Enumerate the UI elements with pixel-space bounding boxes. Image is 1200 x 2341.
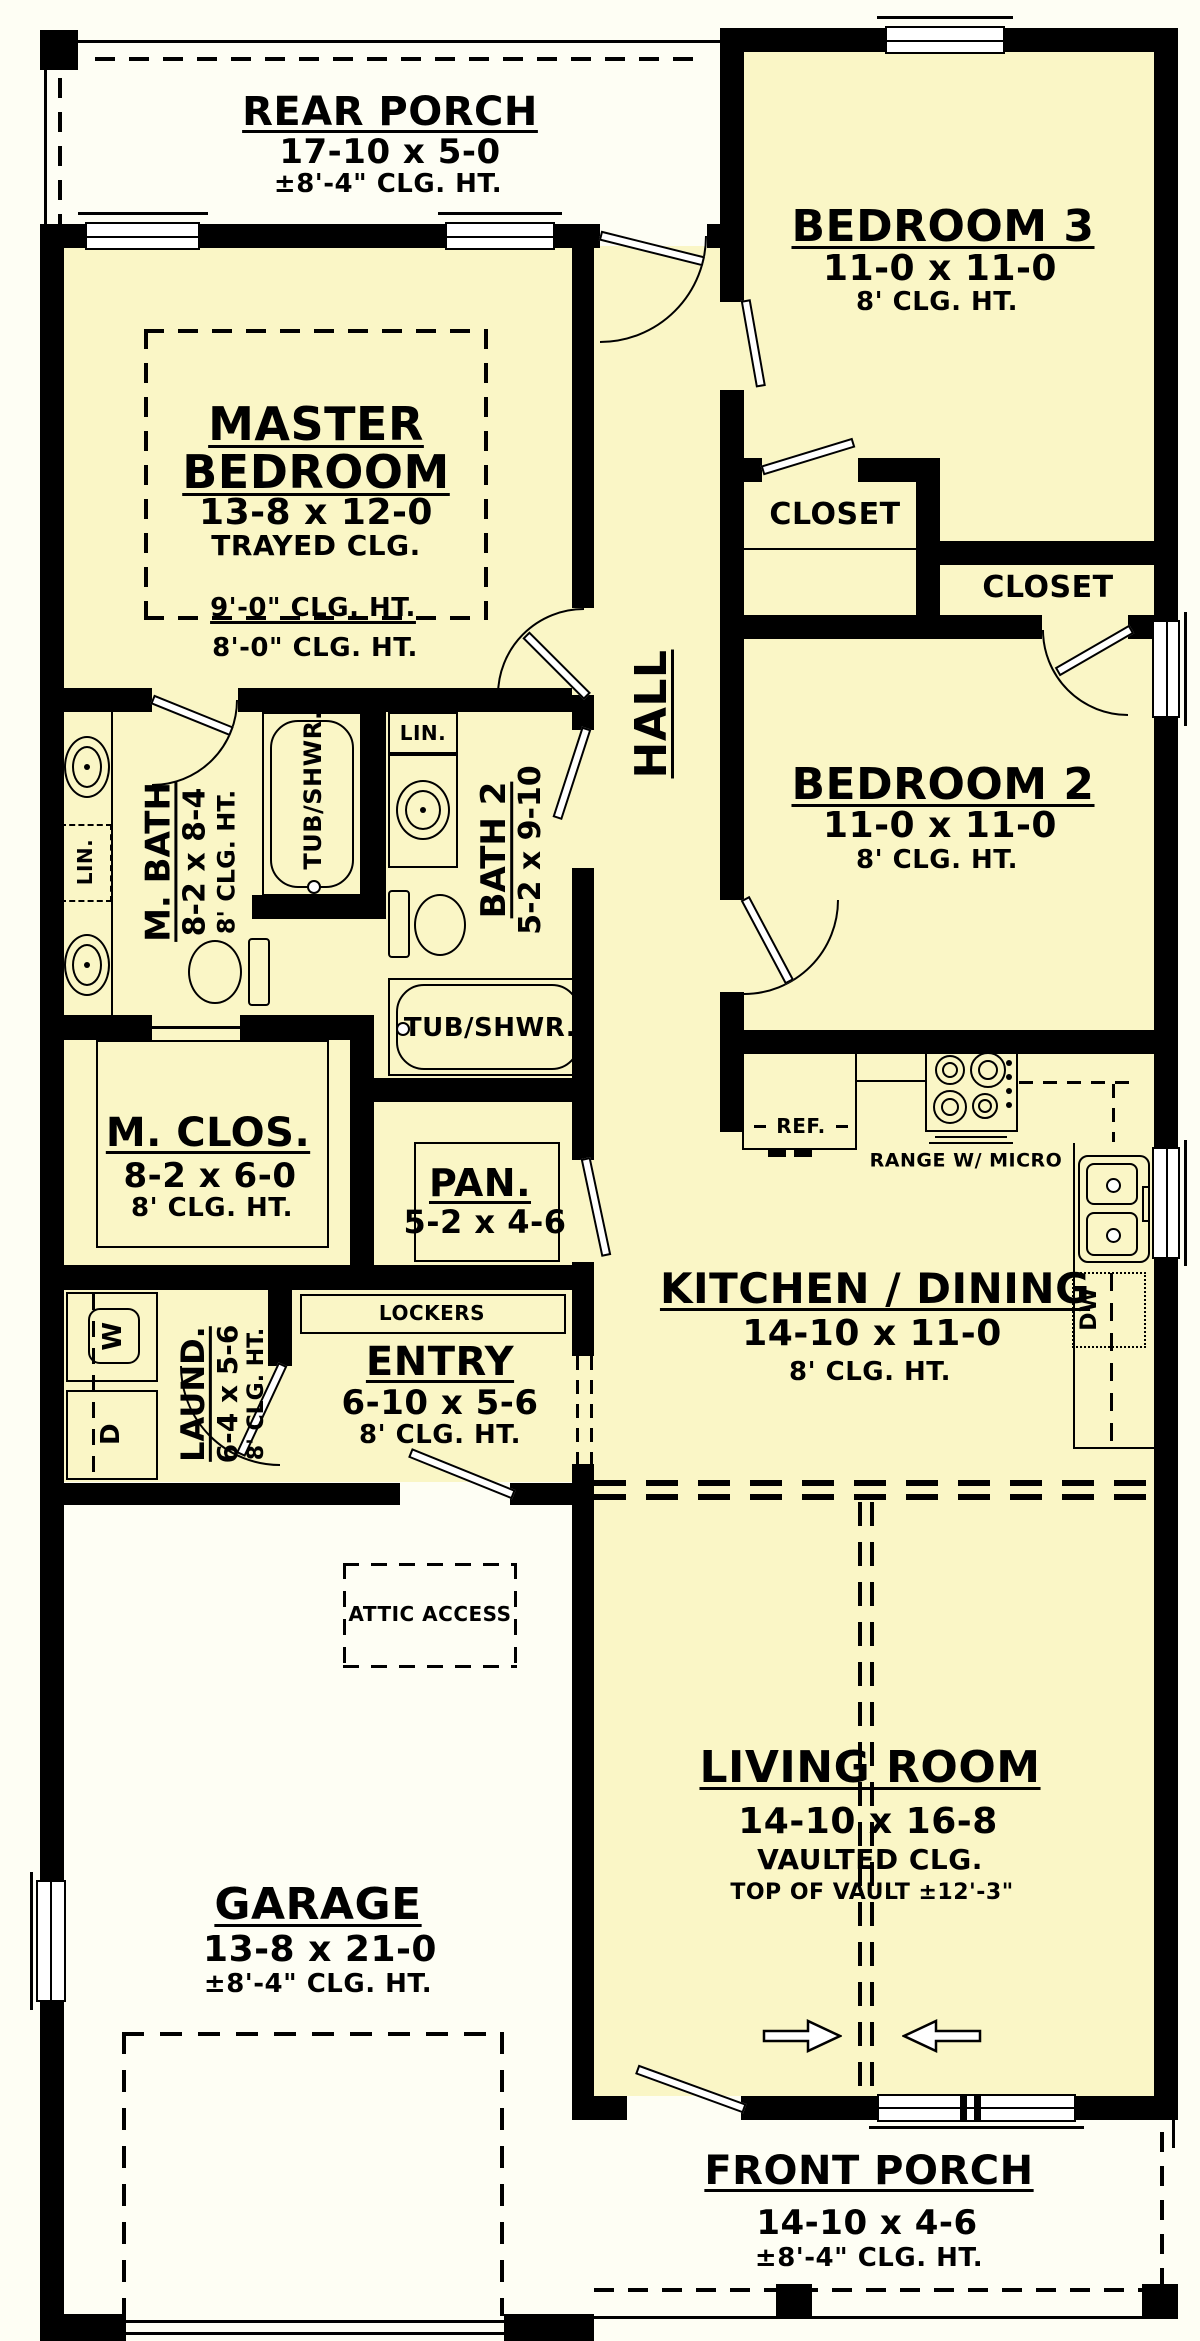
laundry-clg: 8' CLG. HT. [244,1325,269,1464]
mbath-label-block: M. BATH 8-2 x 8-4 8' CLG. HT. [139,782,240,942]
range-knob-1 [1006,1060,1012,1066]
wall-living-front-b [741,2096,877,2120]
tray-ceiling-dash-left [144,329,148,620]
kitchen-counter-bottom-edge [1073,1447,1154,1449]
wall-living-front-a [572,2096,627,2120]
front-porch-edge-right-solid [1172,2120,1175,2148]
master-low-clg-note: 8'-0" CLG. HT. [212,635,418,661]
ref-label-dash-left [754,1125,766,1128]
bath2-name: BATH 2 [475,765,514,935]
wall-garage-bottom-a [40,2314,126,2341]
rear-porch-dashed-left [58,78,62,224]
lockers-label: LOCKERS [379,1303,485,1323]
tray-ceiling-dash-right [484,329,488,620]
entry-cased-opening-dash-2 [590,1356,593,1464]
ridge-arrow-left-icon [902,2016,982,2056]
kitchen-cab-dash-h [1019,1081,1134,1084]
sink-faucet [1142,1186,1150,1222]
burner-4i [978,1099,992,1113]
window-garage [36,1880,66,2002]
entry-clg: 8' CLG. HT. [359,1422,521,1448]
master-name-line2: BEDROOM [182,449,450,495]
front-porch-name: FRONT PORCH [704,2151,1033,2191]
garage-door-panel-line2 [126,2332,504,2335]
ridge-dash-left [858,1502,862,2096]
kitchen-dims: 14-10 x 11-0 [742,1316,1002,1352]
window-rear-1 [85,222,200,250]
wall-living-front-c [1076,2096,1178,2120]
garage-dims: 13-8 x 21-0 [203,1932,437,1968]
wall-under-master-tub [252,895,386,919]
bath2-tub-label: TUB/SHWR. [404,1015,576,1041]
wall-rear-a [40,224,85,248]
attic-dash-right [514,1563,517,1668]
wall-rear-d [707,224,720,248]
wall-garage-bottom-b [504,2314,594,2341]
wall-bedroom2-top-a [720,615,1042,639]
window-kitchen [1152,1147,1180,1259]
ref-handle-1 [768,1150,786,1157]
master-name-line1: MASTER [208,401,424,447]
master-tub-label: TUB/SHWR. [301,710,325,869]
wall-rear-c [555,224,600,248]
mbath-dims: 8-2 x 8-4 [179,782,214,942]
window-sill-bedroom3 [877,16,1013,19]
closet-bedroom3-label: CLOSET [769,500,900,530]
bedroom3-name: BEDROOM 3 [791,205,1094,249]
rear-porch-dims: 17-10 x 5-0 [279,135,500,169]
mbath-sink2-drain [84,962,90,968]
burner-2i [978,1060,998,1080]
garage-door-panel-line1 [126,2320,504,2323]
ridge-dash-right [870,1502,874,2096]
porch-column-right [1142,2284,1178,2318]
wall-laundry-top [40,1265,594,1290]
bedroom2-dims: 11-0 x 11-0 [823,808,1057,844]
living-clg: VAULTED CLG. [757,1846,983,1874]
mclos-opening-line [152,1026,240,1029]
window-living-front [877,2094,1076,2122]
attic-dash-top [343,1563,517,1566]
front-porch-clg: ±8'-4" CLG. HT. [755,2245,983,2271]
bedroom2-name: BEDROOM 2 [791,763,1094,807]
entry-name: ENTRY [366,1342,514,1382]
laundry-name: LAUND. [175,1325,212,1464]
kitchen-clg: 8' CLG. HT. [789,1359,951,1385]
porch-column-left [776,2284,812,2318]
living-dims: 14-10 x 16-8 [738,1804,998,1840]
garage-door-dash-top [122,2032,504,2036]
hall-label: HALL [630,650,674,779]
wall-laundry-entry [268,1290,292,1366]
wall-mclos-east [350,1015,374,1290]
wall-hall-east-a [720,52,744,302]
window-sill-bedroom2 [1184,612,1187,726]
range-vent-line2 [929,1142,1013,1144]
living-name: LIVING ROOM [699,1746,1040,1790]
window-bedroom2 [1152,620,1180,718]
wall-closet2-top [940,541,1178,565]
entry-dims: 6-10 x 5-6 [341,1386,538,1420]
master-clg: TRAYED CLG. [211,532,421,560]
wall-garage-top-b [510,1483,594,1505]
burner-1i [942,1062,958,1078]
bath2-toilet-tank [388,890,410,958]
washer-label: W [100,1321,126,1350]
mbath-clg: 8' CLG. HT. [213,782,241,942]
window-sill-garage [30,1872,33,2010]
attic-dash-left [343,1563,346,1668]
mbath-linen-label: LIN. [75,839,95,886]
rear-porch-edge-left [44,40,47,224]
bedroom3-clg: 8' CLG. HT. [856,289,1018,315]
master-tub-faucet [307,880,321,894]
front-porch-edge-bottom [594,2316,1178,2319]
wall-rear-b [200,224,445,248]
range-label: RANGE W/ MICRO [870,1152,1063,1171]
window-sill-kitchen [1184,1140,1187,1266]
kitchen-cab-dash-v [1112,1084,1115,1142]
wall-garage-top-a [40,1483,400,1505]
ceiling-break-dash-2 [594,1494,1154,1500]
ref-label: REF. [776,1116,825,1136]
bath2-linen-label: LIN. [400,723,447,743]
mclos-dims: 8-2 x 6-0 [124,1159,297,1193]
bedroom2-clg: 8' CLG. HT. [856,847,1018,873]
wall-mbath-bottom-a [40,1015,152,1040]
wall-hall-east-c [720,992,744,1132]
wall-closet-divider [916,458,940,639]
garage-name: GARAGE [214,1883,421,1927]
range-vent-line1 [935,1136,1007,1138]
wall-closet1-top-b [858,458,916,482]
garage-clg: ±8'-4" CLG. HT. [204,1971,432,1997]
bedroom3-dims: 11-0 x 11-0 [823,251,1057,287]
floor-plan: REAR PORCH 17-10 x 5-0 ±8'-4" CLG. HT. B… [0,0,1200,2341]
mbath-toilet-bowl [188,940,242,1004]
garage-door-dash-left [122,2032,126,2316]
wall-closet1-top-a [720,458,762,482]
sink-drain-1 [1106,1178,1121,1193]
mclos-name: M. CLOS. [106,1113,310,1153]
master-dims: 13-8 x 12-0 [199,495,433,531]
laundry-dims: 6-4 x 5-6 [212,1325,244,1464]
window-sill-rear1 [78,212,208,215]
attic-access-label: ATTIC ACCESS [348,1604,511,1624]
bath2-label-block: BATH 2 5-2 x 9-10 [475,765,549,935]
wall-hall-west-a [572,246,594,608]
mclos-clg: 8' CLG. HT. [131,1195,293,1221]
master-tray-clg-note: 9'-0" CLG. HT. [210,595,416,621]
window-sill-rear2 [438,212,562,215]
window-sill-living [869,2126,1084,2129]
range-knob-4 [1006,1102,1012,1108]
window-bedroom3 [885,26,1005,54]
rear-porch-edge-top [44,40,732,43]
wall-mbath-bath2 [362,688,386,919]
rear-porch-name: REAR PORCH [242,92,538,132]
living-vault-note: TOP OF VAULT ±12'-3" [730,1882,1013,1904]
pantry-dims: 5-2 x 4-6 [403,1206,566,1238]
wall-garage-living [572,1505,594,2120]
wall-master-bottom-a [40,688,152,712]
ceiling-break-dash-1 [594,1480,1154,1486]
entry-cased-opening-dash-1 [576,1356,579,1464]
closet-bedroom2-label: CLOSET [982,573,1113,603]
burner-3i [941,1098,959,1116]
sink-drain-2 [1106,1228,1121,1243]
wall-bath2-tub-bottom [350,1078,594,1102]
mbath-sink1-drain [84,764,90,770]
rear-porch-clg: ±8'-4" CLG. HT. [274,171,502,197]
wall-hall-west-b [572,695,594,730]
wall-outer-right [1154,28,1178,2120]
garage-door-dash-right [500,2032,504,2316]
kitchen-name: KITCHEN / DINING [660,1268,1090,1310]
bath2-dims: 5-2 x 9-10 [514,765,549,935]
kitchen-counter-top-edge [857,1080,927,1082]
laundry-label-block: LAUND. 6-4 x 5-6 8' CLG. HT. [175,1325,269,1464]
range-knob-2 [1006,1074,1012,1080]
ref-label-dash-right [836,1125,848,1128]
bath2-sink-drain [420,807,426,813]
closet1-shelf-line [744,548,916,550]
mbath-name: M. BATH [139,782,178,942]
attic-dash-bottom [343,1665,517,1668]
ridge-arrow-right-icon [762,2016,842,2056]
ref-handle-2 [794,1150,812,1157]
front-porch-dash-bottom [594,2288,1154,2292]
dryer-label: D [98,1423,124,1445]
pantry-name: PAN. [429,1164,531,1202]
mbath-toilet-tank [248,938,270,1006]
tray-ceiling-dash-top [144,329,488,333]
window-rear-2 [445,222,555,250]
front-porch-dash-right [1160,2132,1164,2284]
rear-porch-dashed-top [95,57,707,61]
front-porch-dims: 14-10 x 4-6 [756,2206,977,2240]
bath2-toilet-bowl [414,894,466,956]
range-knob-3 [1006,1088,1012,1094]
